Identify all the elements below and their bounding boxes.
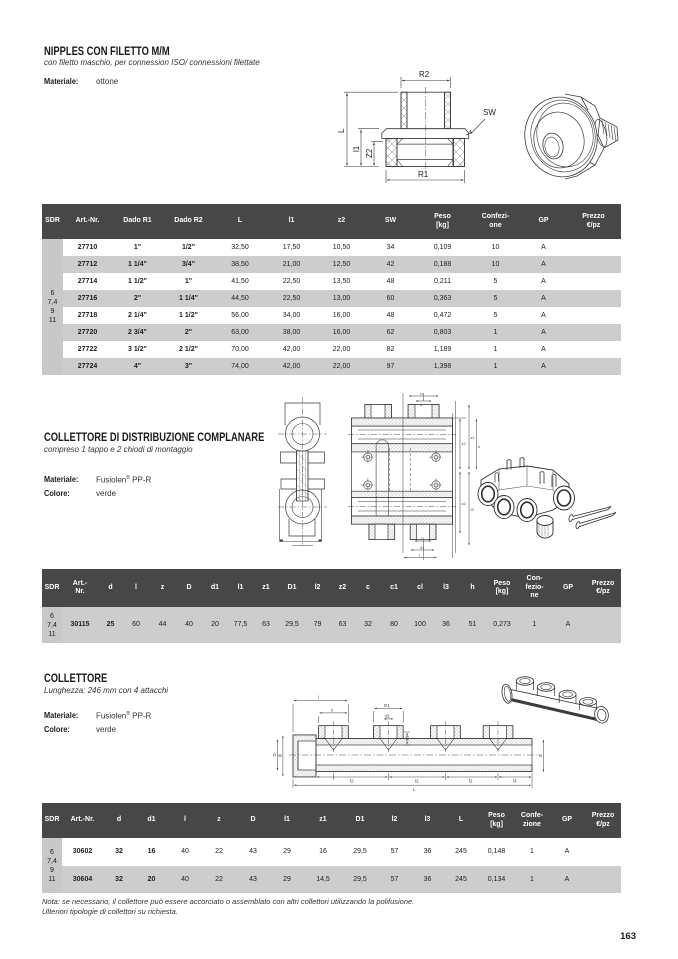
svg-text:R2: R2	[419, 70, 430, 79]
svg-text:l: l	[419, 553, 420, 558]
svg-text:d: d	[420, 402, 422, 407]
svg-text:R1: R1	[418, 170, 429, 179]
svg-text:l3: l3	[513, 779, 517, 784]
svg-text:l1: l1	[352, 145, 361, 152]
svg-text:D1: D1	[384, 703, 390, 708]
svg-text:Z2: Z2	[365, 148, 374, 158]
svg-text:D: D	[272, 753, 277, 757]
svg-text:z1: z1	[405, 735, 410, 740]
svg-text:z1: z1	[471, 435, 476, 440]
svg-text:z: z	[331, 707, 334, 712]
svg-text:L: L	[337, 128, 346, 133]
svg-text:d: d	[538, 754, 543, 757]
svg-text:l2: l2	[350, 779, 354, 784]
svg-text:d1: d1	[385, 714, 391, 719]
svg-text:D: D	[420, 393, 423, 396]
svg-text:L: L	[413, 787, 416, 792]
svg-text:l2: l2	[415, 779, 419, 784]
svg-text:SW: SW	[483, 108, 496, 117]
svg-text:D: D	[421, 536, 424, 541]
svg-text:l: l	[318, 695, 319, 700]
svg-text:d1: d1	[420, 545, 425, 550]
svg-text:d: d	[278, 754, 283, 757]
svg-text:z2: z2	[462, 441, 467, 446]
svg-text:l2: l2	[469, 779, 473, 784]
